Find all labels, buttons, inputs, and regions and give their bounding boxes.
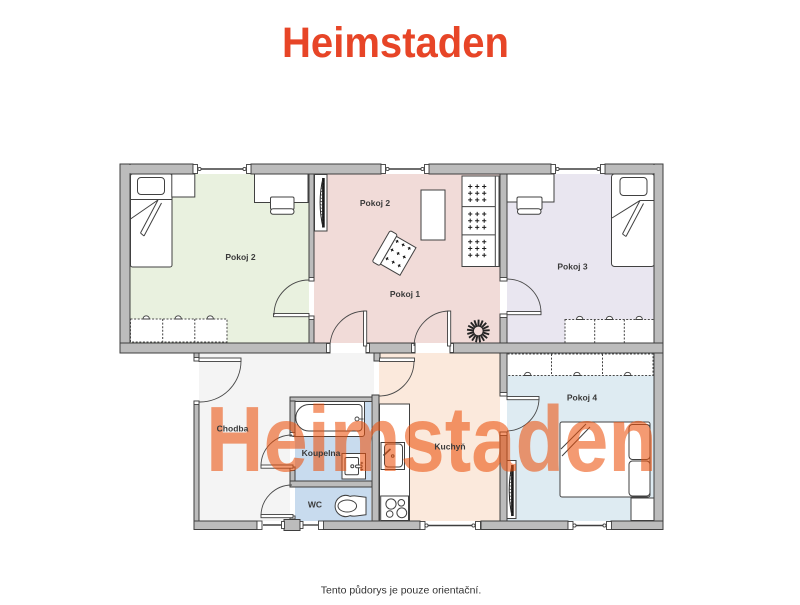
svg-text:Pokoj 4: Pokoj 4	[567, 393, 598, 403]
svg-text:Pokoj 3: Pokoj 3	[557, 262, 588, 272]
svg-text:Pokoj 1: Pokoj 1	[390, 289, 421, 299]
svg-text:Kuchyň: Kuchyň	[434, 442, 465, 452]
svg-text:Pokoj 2: Pokoj 2	[360, 198, 391, 208]
svg-text:Heimstaden: Heimstaden	[282, 19, 509, 67]
svg-text:WC: WC	[308, 500, 322, 510]
svg-text:Heimstaden: Heimstaden	[206, 387, 657, 491]
svg-text:Pokoj 2: Pokoj 2	[225, 252, 256, 262]
svg-text:Chodba: Chodba	[217, 424, 249, 434]
svg-text:Tento půdorys je pouze orienta: Tento půdorys je pouze orientační.	[321, 585, 482, 597]
svg-text:Koupelna: Koupelna	[302, 448, 341, 458]
